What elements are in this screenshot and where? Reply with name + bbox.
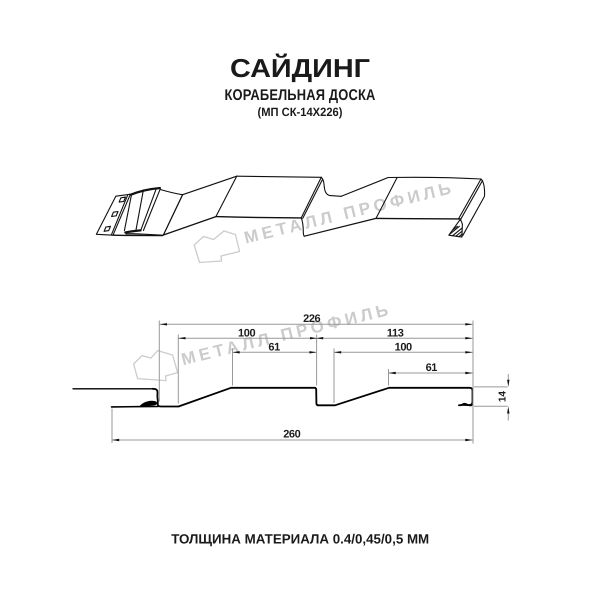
svg-text:260: 260: [283, 429, 300, 441]
svg-text:ТОЛЩИНА МАТЕРИАЛА 0.4/0,45/0,5: ТОЛЩИНА МАТЕРИАЛА 0.4/0,45/0,5 ММ: [171, 531, 429, 546]
svg-text:61: 61: [268, 341, 280, 353]
svg-text:САЙДИНГ: САЙДИНГ: [230, 53, 370, 83]
svg-text:113: 113: [387, 327, 404, 339]
svg-text:100: 100: [238, 327, 255, 339]
svg-text:КОРАБЕЛЬНАЯ ДОСКА: КОРАБЕЛЬНАЯ ДОСКА: [225, 87, 376, 104]
svg-text:61: 61: [426, 362, 438, 374]
svg-text:226: 226: [303, 313, 320, 325]
svg-text:(МП СК-14Х226): (МП СК-14Х226): [258, 105, 343, 119]
svg-text:14: 14: [497, 391, 508, 403]
svg-text:100: 100: [395, 341, 412, 353]
